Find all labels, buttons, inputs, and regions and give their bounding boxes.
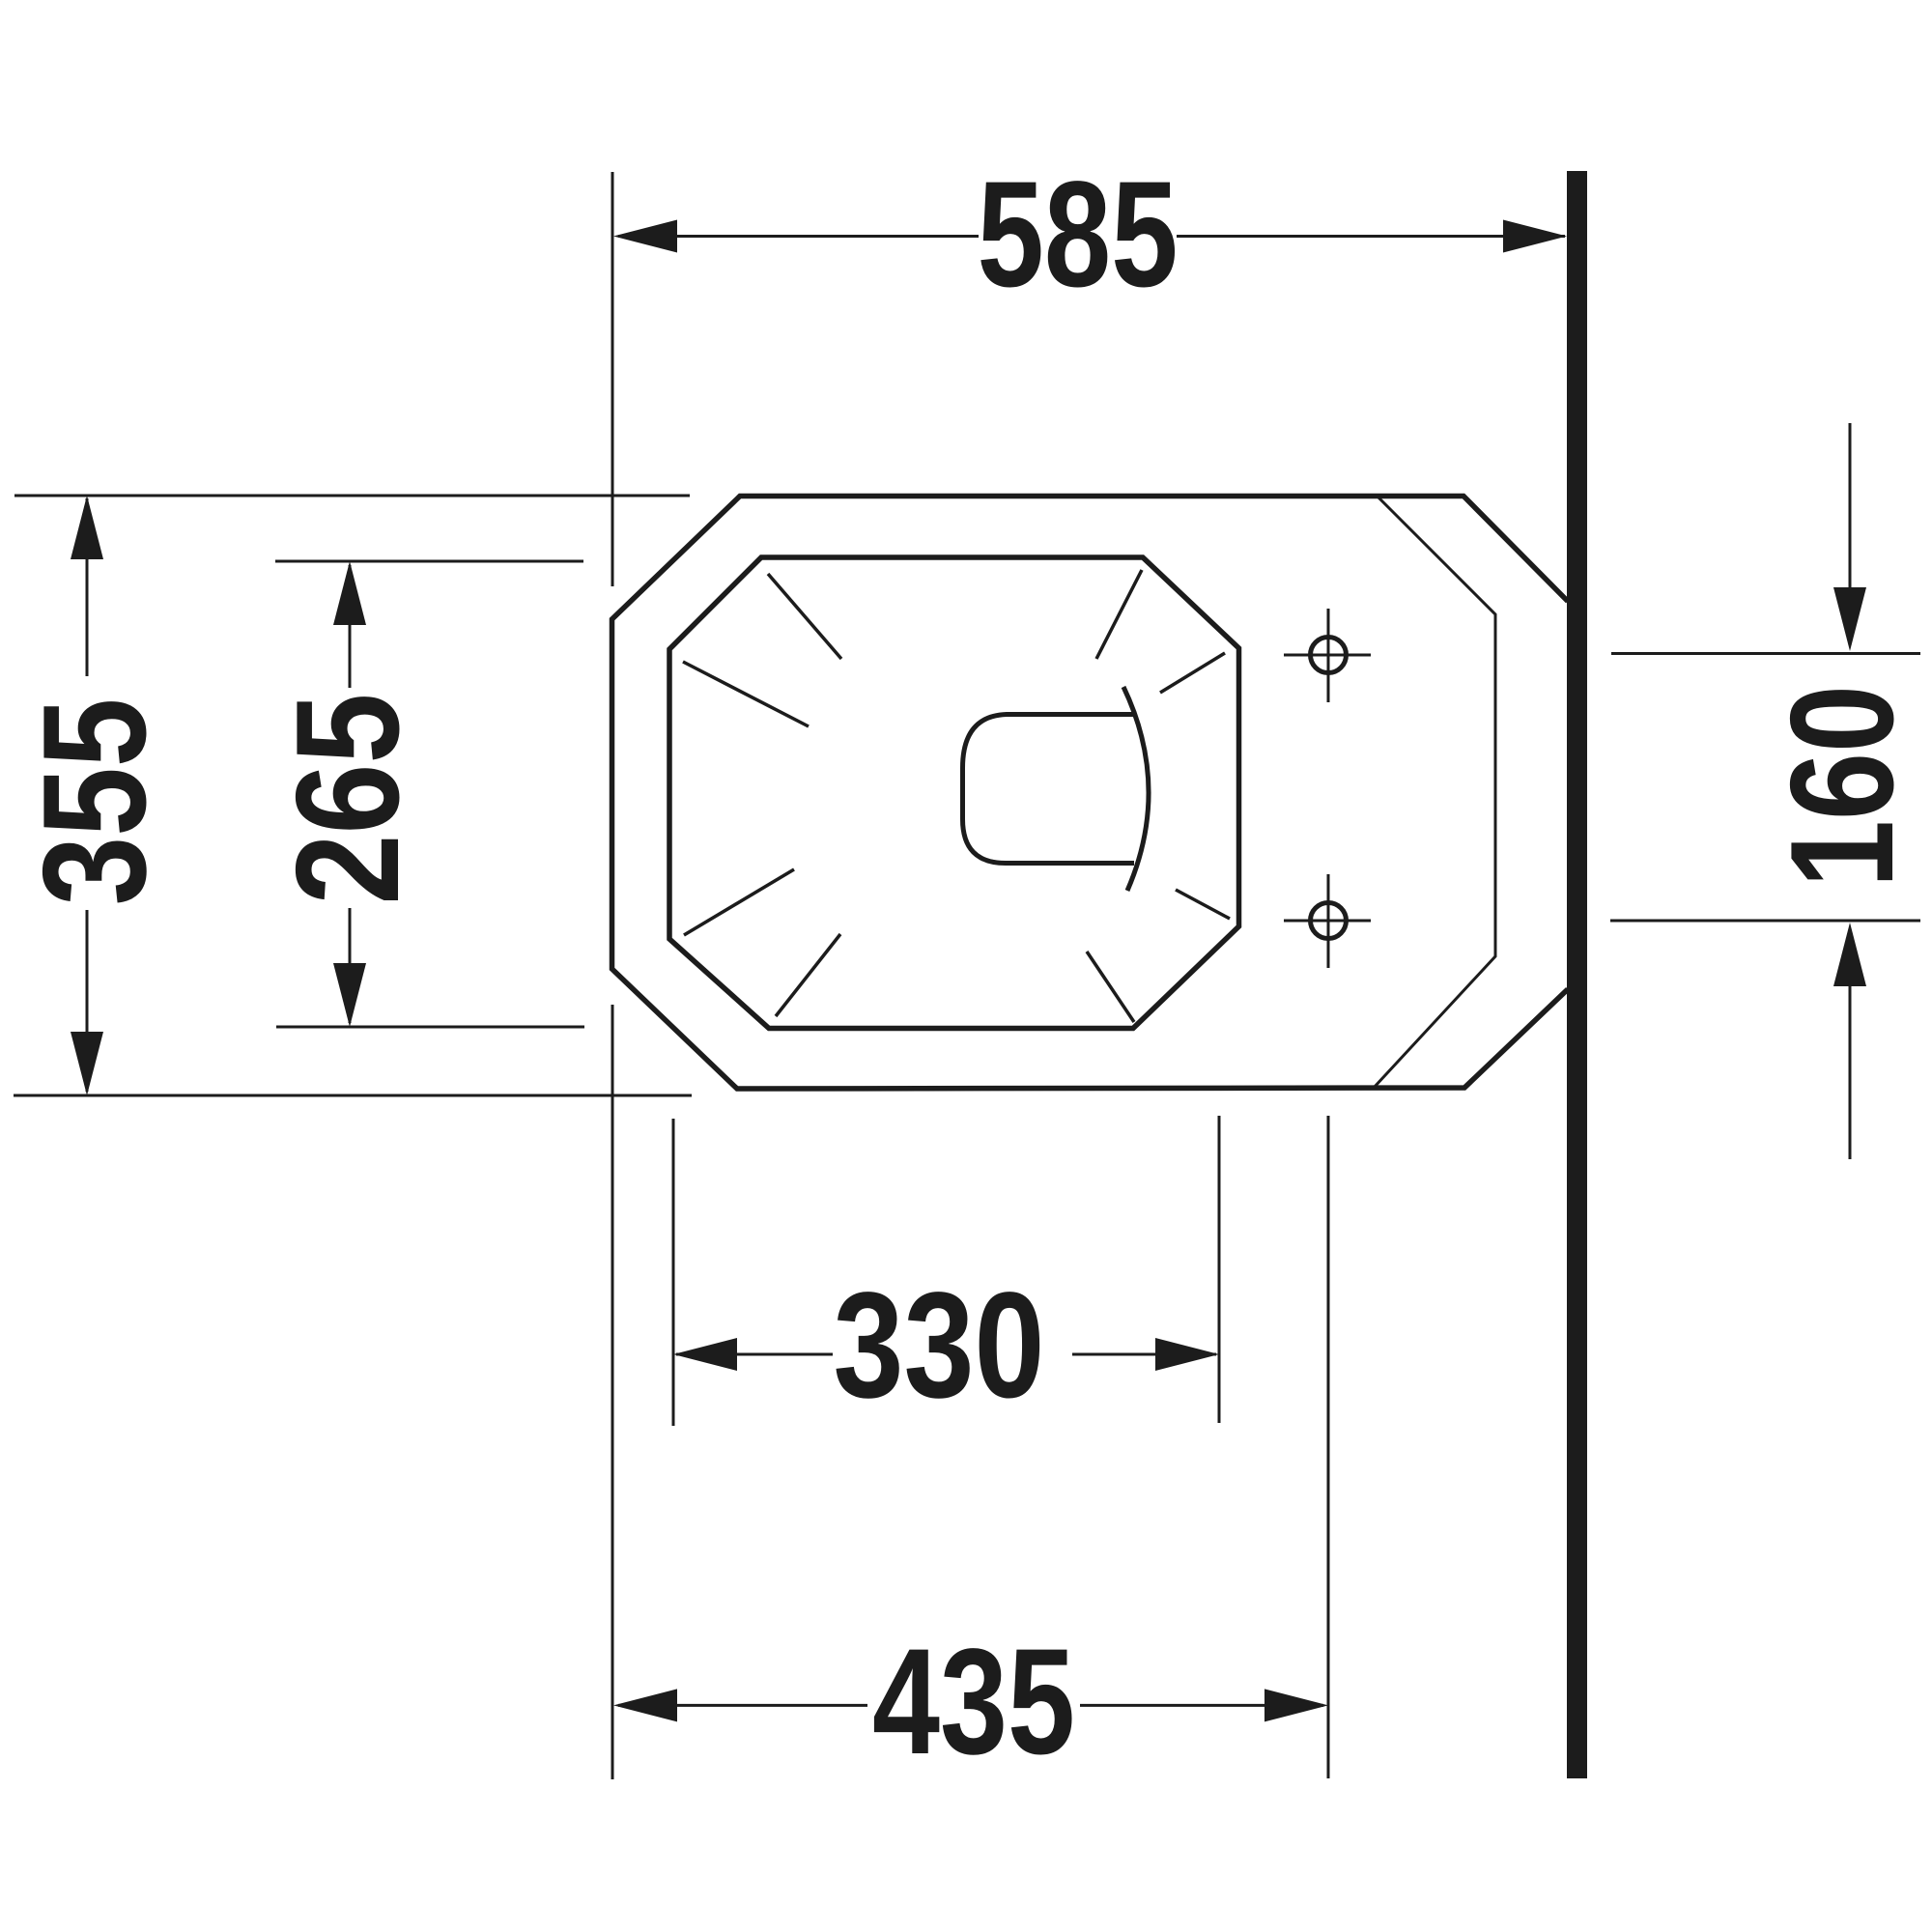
svg-text:435: 435 — [872, 1618, 1075, 1786]
svg-text:355: 355 — [13, 698, 177, 906]
svg-text:265: 265 — [266, 694, 430, 905]
svg-text:160: 160 — [1760, 685, 1924, 888]
svg-text:330: 330 — [834, 1262, 1045, 1430]
svg-text:585: 585 — [978, 151, 1179, 319]
